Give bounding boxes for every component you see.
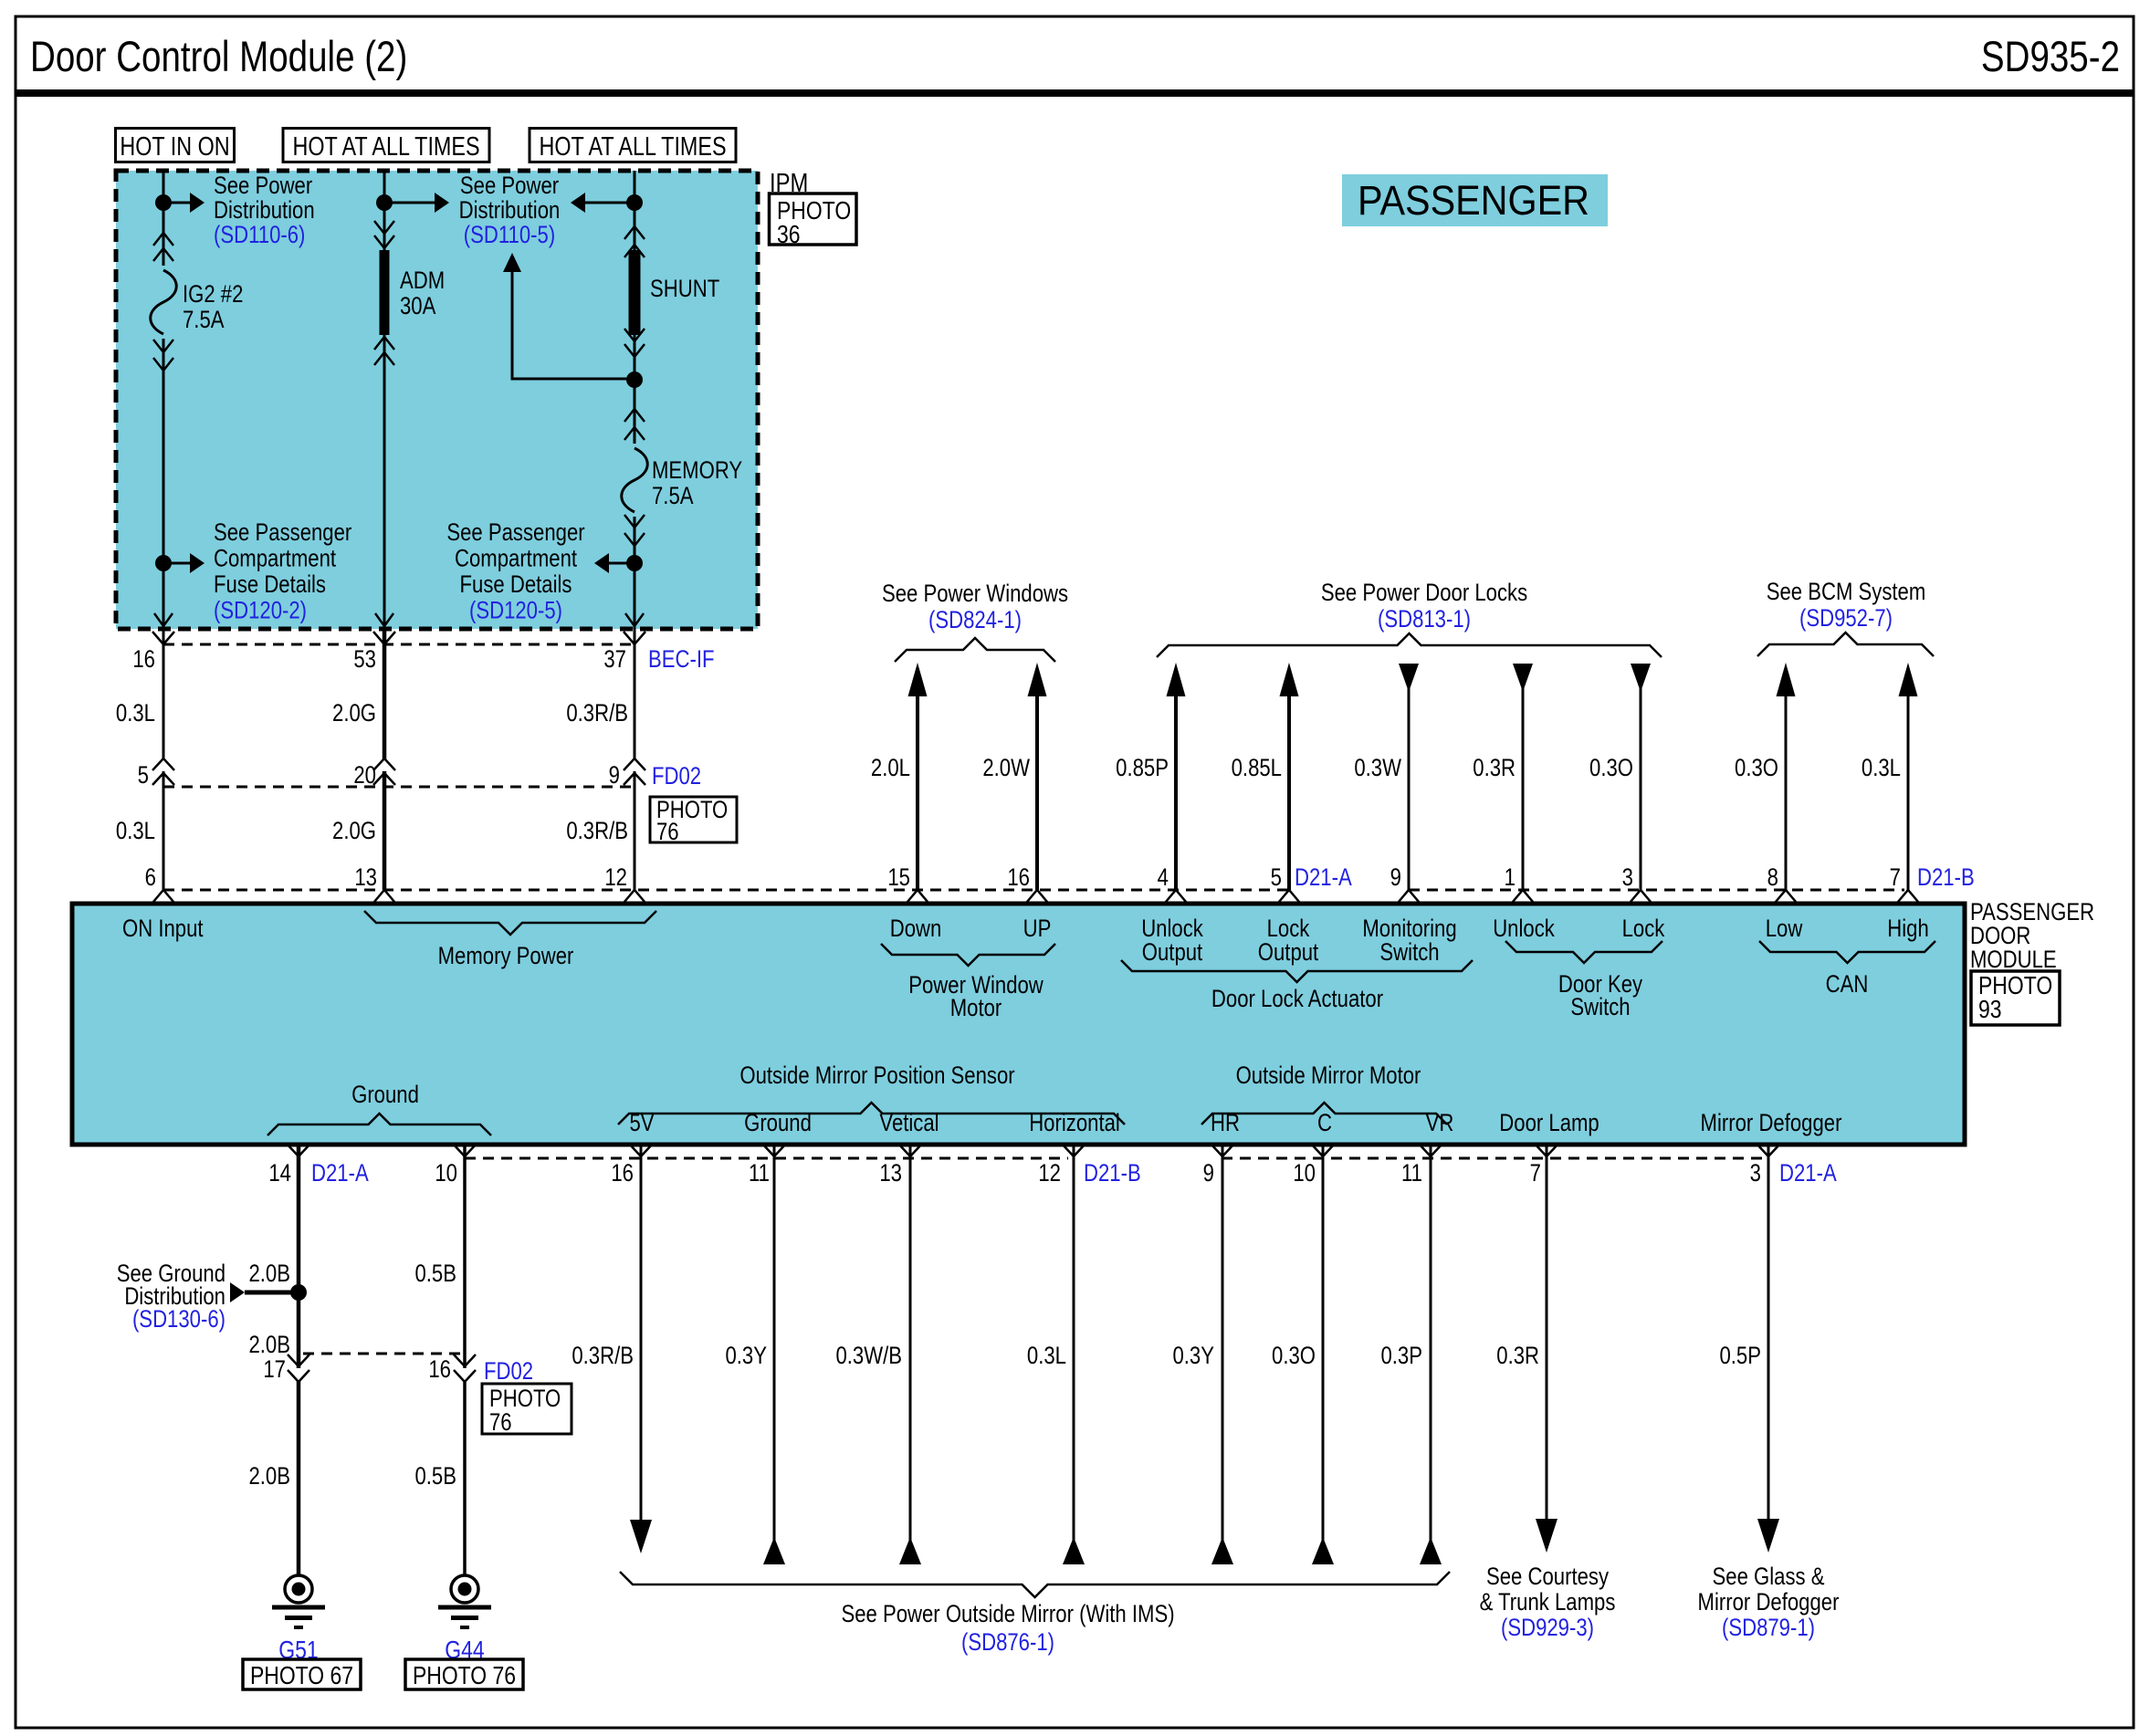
svg-text:ADM: ADM <box>400 267 445 295</box>
svg-text:Outside Mirror Motor: Outside Mirror Motor <box>1236 1062 1421 1090</box>
svg-text:D21-B: D21-B <box>1084 1160 1141 1187</box>
svg-text:0.3L: 0.3L <box>116 700 155 727</box>
svg-text:Down: Down <box>890 915 942 943</box>
svg-text:2.0W: 2.0W <box>982 755 1030 782</box>
svg-text:20: 20 <box>353 762 376 790</box>
svg-text:8: 8 <box>1767 864 1778 892</box>
svg-text:7: 7 <box>1890 864 1901 892</box>
svg-text:5: 5 <box>138 762 149 790</box>
svg-text:(SD876-1): (SD876-1) <box>961 1629 1054 1657</box>
svg-text:0.3L: 0.3L <box>1862 755 1901 782</box>
svg-text:0.85P: 0.85P <box>1116 755 1169 782</box>
svg-text:Vetical: Vetical <box>879 1110 939 1137</box>
svg-text:2.0B: 2.0B <box>248 1463 290 1490</box>
svg-text:Unlock: Unlock <box>1493 915 1555 943</box>
svg-text:2.0G: 2.0G <box>332 818 376 845</box>
svg-text:D21-A: D21-A <box>311 1160 369 1187</box>
svg-text:C: C <box>1317 1110 1332 1137</box>
svg-text:(SD110-6): (SD110-6) <box>214 222 305 249</box>
svg-text:Fuse Details: Fuse Details <box>214 571 326 599</box>
svg-text:11: 11 <box>749 1160 770 1187</box>
svg-text:Low: Low <box>1766 915 1803 943</box>
svg-text:See Power: See Power <box>214 173 312 200</box>
svg-text:D21-A: D21-A <box>1295 864 1352 892</box>
svg-text:7.5A: 7.5A <box>183 307 225 334</box>
svg-text:Output: Output <box>1258 939 1319 967</box>
svg-text:(SD110-5): (SD110-5) <box>464 222 555 249</box>
svg-text:2.0L: 2.0L <box>871 755 910 782</box>
svg-text:9: 9 <box>1390 864 1401 892</box>
svg-text:(SD120-2): (SD120-2) <box>214 598 307 625</box>
svg-text:SHUNT: SHUNT <box>650 276 719 303</box>
svg-text:VR: VR <box>1426 1110 1454 1137</box>
svg-text:See Courtesy: See Courtesy <box>1486 1563 1610 1591</box>
svg-text:See BCM System: See BCM System <box>1767 579 1926 606</box>
svg-text:Outside Mirror Position Sensor: Outside Mirror Position Sensor <box>739 1062 1014 1090</box>
svg-text:15: 15 <box>887 864 910 892</box>
svg-text:Switch: Switch <box>1379 939 1439 967</box>
svg-text:17: 17 <box>263 1356 286 1384</box>
svg-text:76: 76 <box>656 819 679 846</box>
svg-text:(SD813-1): (SD813-1) <box>1378 606 1471 633</box>
svg-text:12: 12 <box>604 864 627 892</box>
svg-text:16: 16 <box>611 1160 634 1187</box>
svg-text:53: 53 <box>353 646 376 674</box>
svg-text:16: 16 <box>132 646 155 674</box>
svg-text:PHOTO 67: PHOTO 67 <box>250 1662 353 1690</box>
svg-text:UP: UP <box>1023 915 1052 943</box>
svg-text:Output: Output <box>1142 939 1203 967</box>
svg-text:37: 37 <box>603 646 626 674</box>
svg-text:MEMORY: MEMORY <box>652 457 742 485</box>
svg-text:9: 9 <box>609 762 620 790</box>
svg-text:Mirror Defogger: Mirror Defogger <box>1701 1110 1842 1137</box>
svg-text:See Power Outside Mirror (With: See Power Outside Mirror (With IMS) <box>841 1601 1174 1628</box>
svg-text:10: 10 <box>1293 1160 1316 1187</box>
svg-text:(SD929-3): (SD929-3) <box>1501 1615 1594 1642</box>
svg-text:& Trunk Lamps: & Trunk Lamps <box>1480 1589 1616 1616</box>
svg-text:0.5B: 0.5B <box>414 1260 456 1288</box>
svg-text:2.0G: 2.0G <box>332 700 376 727</box>
svg-text:HR: HR <box>1211 1110 1240 1137</box>
svg-text:2.0B: 2.0B <box>248 1332 290 1359</box>
svg-text:13: 13 <box>354 864 377 892</box>
svg-text:Mirror Defogger: Mirror Defogger <box>1698 1589 1840 1616</box>
svg-text:0.3R/B: 0.3R/B <box>572 1343 634 1370</box>
svg-text:Compartment: Compartment <box>455 546 577 573</box>
svg-text:0.5P: 0.5P <box>1719 1343 1761 1370</box>
svg-text:16: 16 <box>428 1356 451 1384</box>
svg-text:7: 7 <box>1530 1160 1541 1187</box>
svg-text:76: 76 <box>489 1409 512 1437</box>
svg-text:D21-A: D21-A <box>1779 1160 1837 1187</box>
svg-text:PASSENGER: PASSENGER <box>1358 177 1589 224</box>
svg-text:12: 12 <box>1038 1160 1061 1187</box>
svg-text:4: 4 <box>1158 864 1169 892</box>
svg-text:See Passenger: See Passenger <box>446 519 584 547</box>
svg-text:HOT AT ALL TIMES: HOT AT ALL TIMES <box>539 131 726 162</box>
svg-text:6: 6 <box>145 864 156 892</box>
svg-text:7.5A: 7.5A <box>652 483 694 510</box>
svg-text:Ground: Ground <box>351 1082 419 1109</box>
svg-text:(SD952-7): (SD952-7) <box>1799 605 1893 633</box>
svg-text:0.3Y: 0.3Y <box>725 1343 767 1370</box>
svg-text:93: 93 <box>1978 996 2002 1024</box>
svg-text:HOT IN ON: HOT IN ON <box>120 131 229 162</box>
svg-text:Lock: Lock <box>1622 915 1665 943</box>
svg-text:2.0B: 2.0B <box>248 1260 290 1288</box>
svg-text:16: 16 <box>1007 864 1030 892</box>
svg-text:(SD879-1): (SD879-1) <box>1722 1615 1815 1642</box>
svg-text:Horizontal: Horizontal <box>1029 1110 1120 1137</box>
svg-text:High: High <box>1887 915 1929 943</box>
svg-text:FD02: FD02 <box>652 763 701 790</box>
svg-text:1: 1 <box>1505 864 1515 892</box>
svg-text:See Power Windows: See Power Windows <box>882 580 1068 608</box>
svg-text:0.3L: 0.3L <box>116 818 155 845</box>
svg-text:FD02: FD02 <box>484 1358 533 1386</box>
svg-text:BEC-IF: BEC-IF <box>648 646 715 674</box>
svg-text:(SD120-5): (SD120-5) <box>469 598 562 625</box>
svg-text:3: 3 <box>1622 864 1633 892</box>
svg-text:0.3L: 0.3L <box>1027 1343 1066 1370</box>
svg-text:14: 14 <box>268 1160 291 1187</box>
svg-text:0.3R: 0.3R <box>1473 755 1515 782</box>
svg-text:Ground: Ground <box>744 1110 812 1137</box>
svg-text:Fuse Details: Fuse Details <box>460 571 572 599</box>
svg-text:(SD824-1): (SD824-1) <box>928 607 1022 634</box>
svg-text:0.3O: 0.3O <box>1272 1343 1316 1370</box>
svg-text:Memory Power: Memory Power <box>438 943 574 970</box>
svg-text:Distribution: Distribution <box>214 197 315 225</box>
svg-text:PHOTO 76: PHOTO 76 <box>413 1662 516 1690</box>
svg-text:See Passenger: See Passenger <box>214 519 351 547</box>
svg-text:0.3O: 0.3O <box>1589 755 1633 782</box>
svg-text:30A: 30A <box>400 293 436 320</box>
svg-text:See Glass &: See Glass & <box>1713 1563 1825 1591</box>
svg-text:9: 9 <box>1203 1160 1214 1187</box>
svg-text:36: 36 <box>777 221 801 249</box>
svg-text:Distribution: Distribution <box>459 197 561 225</box>
svg-text:0.3O: 0.3O <box>1735 755 1778 782</box>
svg-text:CAN: CAN <box>1826 971 1869 999</box>
svg-text:MODULE: MODULE <box>1970 946 2057 974</box>
svg-text:0.3Y: 0.3Y <box>1172 1343 1214 1370</box>
svg-text:Door Lamp: Door Lamp <box>1499 1110 1599 1137</box>
svg-text:See Power Door Locks: See Power Door Locks <box>1321 580 1527 607</box>
svg-text:Switch: Switch <box>1570 994 1630 1021</box>
svg-text:5: 5 <box>1271 864 1282 892</box>
svg-text:See Power: See Power <box>460 173 559 200</box>
svg-text:10: 10 <box>435 1160 457 1187</box>
svg-text:0.3W/B: 0.3W/B <box>835 1343 902 1370</box>
svg-text:0.3P: 0.3P <box>1380 1343 1422 1370</box>
svg-text:ON Input: ON Input <box>122 915 204 943</box>
svg-text:11: 11 <box>1401 1160 1422 1187</box>
svg-text:0.3R/B: 0.3R/B <box>566 818 628 845</box>
svg-text:(SD130-6): (SD130-6) <box>132 1306 225 1333</box>
svg-text:D21-B: D21-B <box>1917 864 1975 892</box>
svg-text:0.3R: 0.3R <box>1496 1343 1539 1370</box>
svg-text:0.5B: 0.5B <box>414 1463 456 1490</box>
svg-text:5V: 5V <box>629 1110 655 1137</box>
svg-text:SD935-2: SD935-2 <box>1981 33 2120 80</box>
svg-text:0.85L: 0.85L <box>1232 755 1282 782</box>
svg-text:Compartment: Compartment <box>214 546 336 573</box>
svg-text:Door Lock Actuator: Door Lock Actuator <box>1211 986 1383 1013</box>
svg-text:0.3W: 0.3W <box>1354 755 1401 782</box>
svg-text:Motor: Motor <box>950 995 1002 1022</box>
svg-text:IG2 #2: IG2 #2 <box>183 281 243 309</box>
svg-text:13: 13 <box>879 1160 902 1187</box>
svg-text:Door Control Module (2): Door Control Module (2) <box>30 33 407 80</box>
svg-text:3: 3 <box>1750 1160 1761 1187</box>
svg-text:HOT AT ALL TIMES: HOT AT ALL TIMES <box>292 131 479 162</box>
svg-text:0.3R/B: 0.3R/B <box>566 700 628 727</box>
